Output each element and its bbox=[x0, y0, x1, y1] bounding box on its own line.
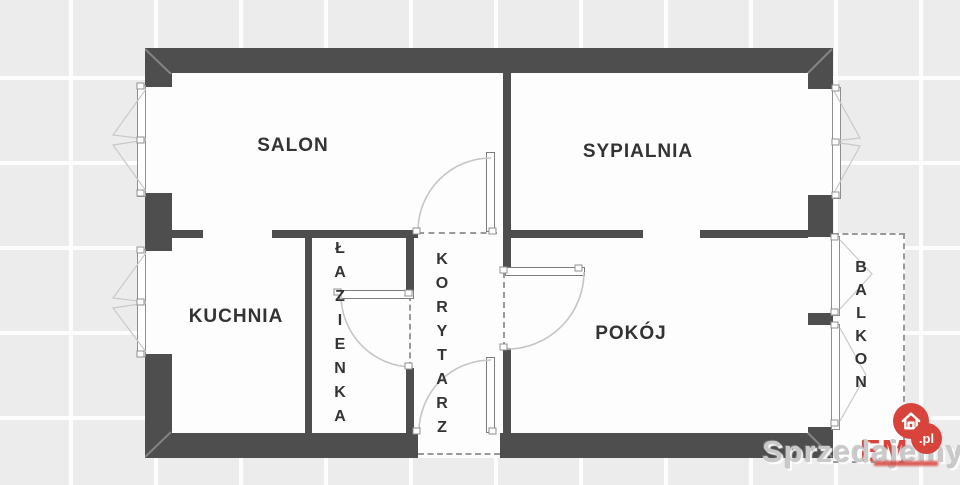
wall-mid-right-b bbox=[700, 230, 808, 238]
entrance-threshold-dashed bbox=[418, 453, 500, 455]
sypialnia-window-opening bbox=[808, 89, 833, 195]
logo-pl-badge: .pl bbox=[911, 423, 942, 454]
wall-bathroom-corridor-upper bbox=[406, 238, 414, 295]
pokoj-door-opening-dashed bbox=[503, 272, 505, 348]
bathroom-door-opening-dashed bbox=[409, 295, 411, 368]
room-label-salon: SALON bbox=[213, 135, 373, 157]
salon-window-frame bbox=[137, 85, 146, 197]
bathroom-door-leaf bbox=[339, 290, 414, 299]
wall-kitchen-bathroom bbox=[305, 238, 312, 433]
room-label-lazienka: ŁAZIENKA bbox=[330, 237, 350, 429]
balcony-door-opening bbox=[808, 237, 833, 313]
entrance-door-leaf bbox=[486, 357, 495, 433]
wall-outer-bottom-left bbox=[145, 433, 418, 458]
sypialnia-window-frame bbox=[832, 87, 841, 199]
wall-outer-top bbox=[145, 48, 833, 73]
corridor-salon-opening-dashed bbox=[418, 232, 497, 234]
kitchen-window-opening bbox=[146, 251, 172, 354]
balcony-door-frame bbox=[831, 236, 840, 316]
pokoj-window-opening bbox=[808, 325, 833, 427]
pokoj-window-frame bbox=[831, 324, 840, 430]
floorplan-canvas: SALON SYPIALNIA KUCHNIA POKÓJ ŁAZIENKA K… bbox=[0, 0, 960, 485]
wall-corridor-pokoj-lower bbox=[503, 348, 511, 433]
room-label-korytarz: KORYTARZ bbox=[432, 248, 452, 440]
logo-tagline-bar bbox=[874, 461, 938, 466]
wall-bathroom-corridor-lower bbox=[406, 368, 414, 433]
kitchen-window-frame bbox=[137, 249, 146, 357]
salon-door-leaf bbox=[486, 152, 495, 232]
room-label-balkon: BALKON bbox=[851, 256, 871, 394]
room-label-pokoj: POKÓJ bbox=[551, 323, 711, 345]
wall-mid-right-a bbox=[511, 230, 643, 238]
pokoj-door-leaf bbox=[505, 267, 585, 276]
salon-window-opening bbox=[146, 87, 172, 193]
wall-mid-left-stub bbox=[172, 230, 203, 238]
room-label-sypialnia: SYPIALNIA bbox=[558, 141, 718, 163]
wall-divider-salon-sypialnia bbox=[503, 73, 511, 238]
room-label-kuchnia: KUCHNIA bbox=[156, 306, 316, 328]
